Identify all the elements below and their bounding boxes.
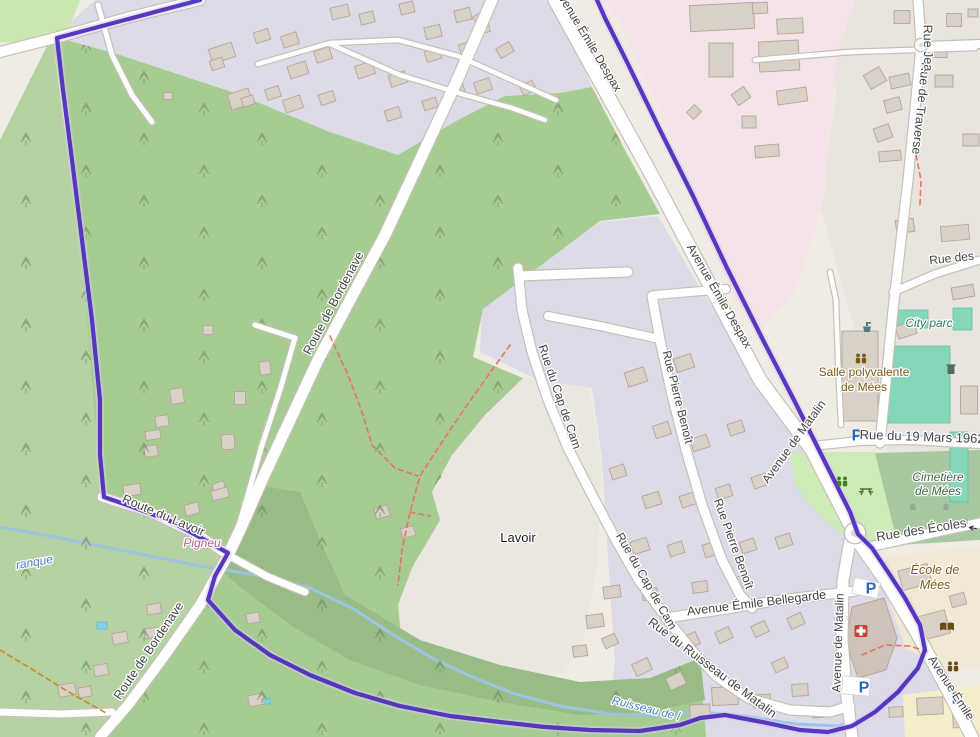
pharmacy-icon	[855, 625, 868, 637]
building	[963, 134, 979, 146]
building	[777, 18, 804, 34]
building	[940, 224, 969, 241]
sports-pitch	[888, 346, 950, 423]
book-icon	[940, 623, 954, 631]
label-pigneu: Pigneu	[183, 536, 221, 550]
label-salle-polyvalente: Salle polyvalente	[819, 365, 910, 379]
building	[968, 9, 978, 17]
building	[572, 645, 587, 658]
tomb-icon	[910, 504, 915, 511]
building	[603, 585, 622, 599]
svg-text:P: P	[859, 680, 870, 697]
map-canvas[interactable]: PPPPRoute de BordenaveRoute de Bordenave…	[0, 0, 980, 737]
building	[742, 116, 756, 128]
building	[947, 14, 962, 27]
label-cimetière: Cimetière	[912, 470, 964, 484]
building	[879, 150, 902, 162]
label-lavoir: Lavoir	[500, 530, 536, 545]
building	[586, 613, 605, 628]
svg-text:P: P	[866, 581, 877, 598]
parking-icon: P	[866, 581, 877, 598]
road-rue-jean	[918, 0, 921, 42]
building	[894, 11, 910, 24]
building	[752, 2, 768, 14]
building	[935, 75, 953, 87]
road-bottom-left-road	[0, 712, 112, 714]
bin-icon	[947, 364, 956, 374]
label-de-mées: de Mées	[915, 484, 961, 498]
label-mées: Mées	[920, 578, 951, 592]
label-de-mées: de Mées	[841, 380, 887, 394]
building	[692, 581, 708, 594]
parking-icon: P	[859, 680, 870, 697]
tomb-icon	[943, 504, 948, 511]
building	[917, 697, 944, 715]
building	[889, 707, 904, 718]
map-viewport[interactable]: PPPPRoute de BordenaveRoute de Bordenave…	[0, 0, 980, 737]
label-city-parc: City parc	[905, 316, 952, 330]
road-cap-de-cam-stub	[520, 272, 628, 276]
building	[689, 2, 754, 31]
building	[755, 144, 780, 158]
label-rue-jea: Rue Jea	[921, 25, 936, 72]
building	[709, 43, 733, 77]
building	[792, 684, 809, 697]
building	[961, 386, 978, 414]
label-école-de: École de	[911, 562, 960, 577]
sports-pitch	[953, 308, 972, 330]
